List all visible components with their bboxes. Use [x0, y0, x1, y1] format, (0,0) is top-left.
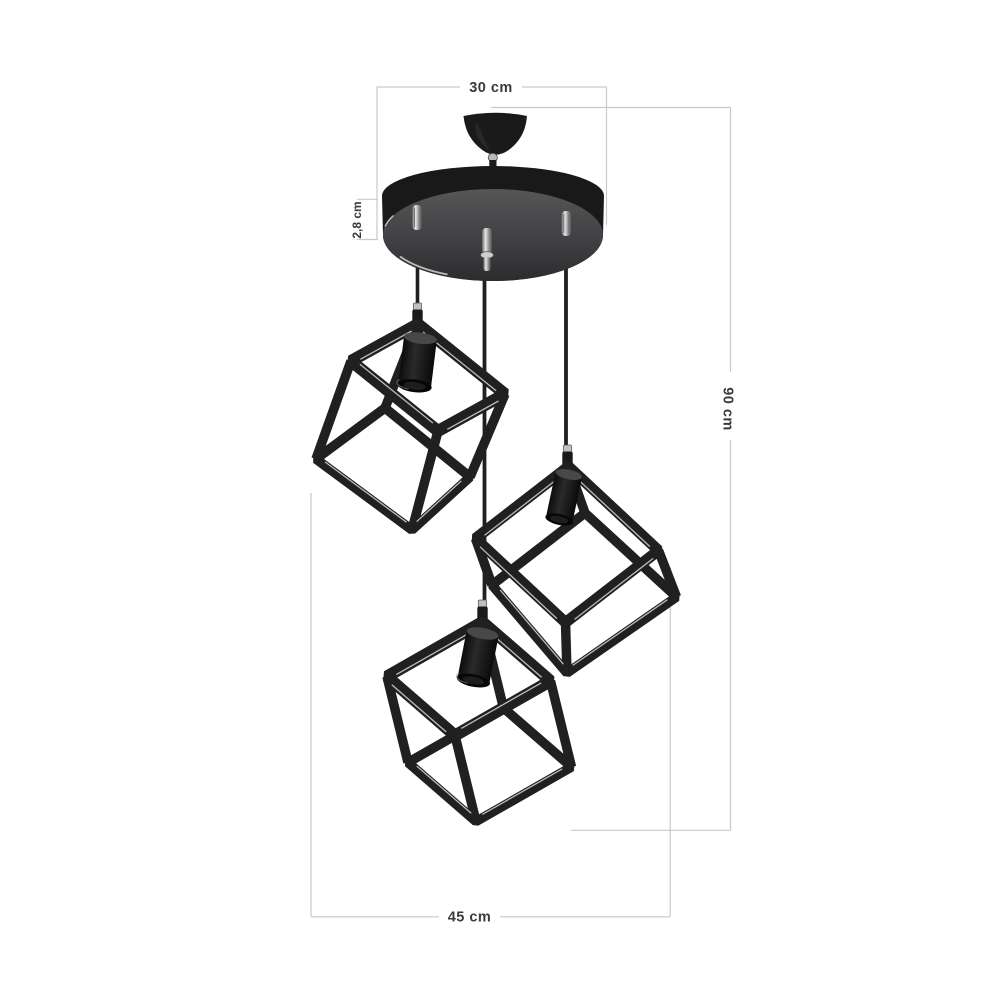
svg-text:45 cm: 45 cm: [448, 910, 492, 926]
svg-text:90 cm: 90 cm: [720, 387, 736, 431]
svg-text:2,8 cm: 2,8 cm: [350, 201, 364, 238]
svg-text:30 cm: 30 cm: [469, 80, 513, 96]
